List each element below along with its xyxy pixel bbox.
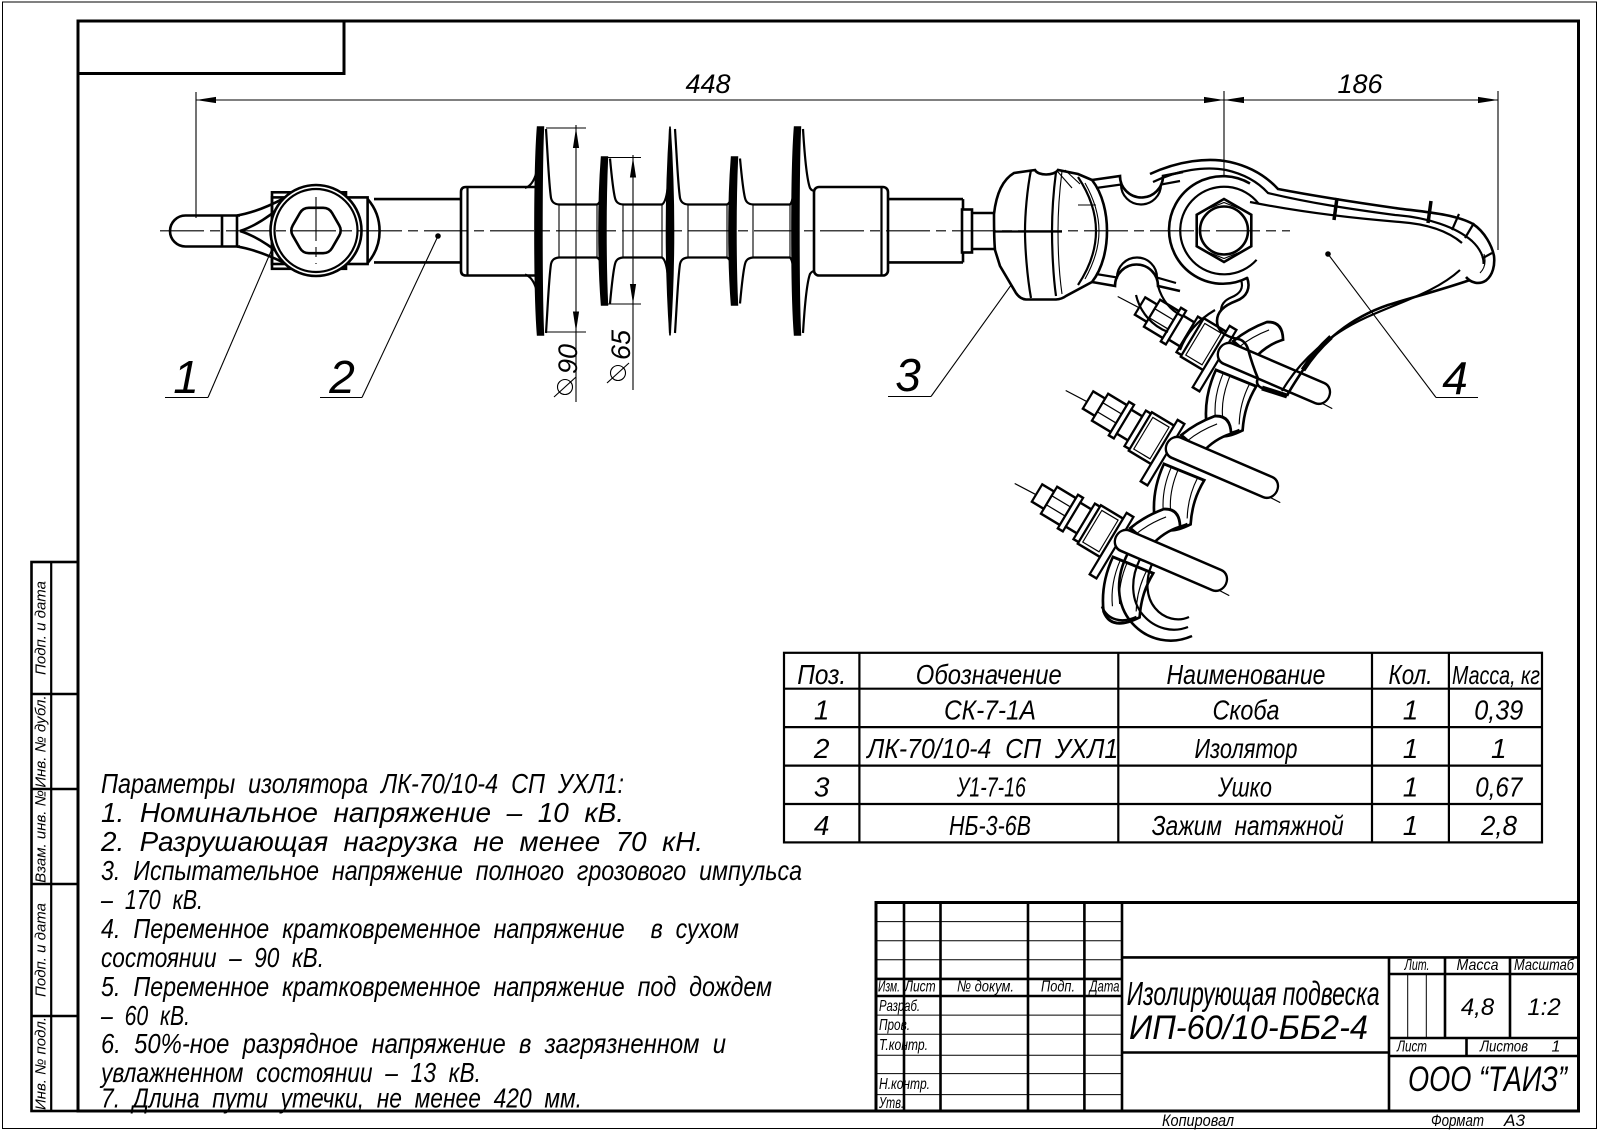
svg-text:Листов: Листов <box>1479 1039 1528 1056</box>
svg-text:Формат: Формат <box>1431 1111 1484 1130</box>
svg-text:Параметры изолятора ЛК-70/10: Параметры изолятора ЛК-70/10-4 СП УХЛ1: <box>101 768 624 799</box>
svg-text:Изолятор: Изолятор <box>1195 733 1298 764</box>
svg-text:7. Длина пути утечки, не: 7. Длина пути утечки, не менее 420 мм. <box>101 1083 582 1114</box>
svg-text:Лист: Лист <box>904 979 936 996</box>
svg-text:Зажим натяжной: Зажим натяжной <box>1152 810 1344 841</box>
svg-text:Копировал: Копировал <box>1162 1111 1234 1130</box>
svg-text:1: 1 <box>173 351 199 403</box>
svg-text:Взам. инв. №: Взам. инв. № <box>33 790 50 883</box>
svg-text:Обозначение: Обозначение <box>916 659 1062 690</box>
svg-text:Кол.: Кол. <box>1389 659 1433 690</box>
svg-text:Масштаб: Масштаб <box>1514 957 1575 974</box>
svg-text:65: 65 <box>606 329 636 360</box>
svg-text:ИП-60/10-ББ2-4: ИП-60/10-ББ2-4 <box>1129 1009 1368 1047</box>
svg-text:Лит.: Лит. <box>1404 957 1430 974</box>
svg-text:Ушко: Ушко <box>1217 772 1272 803</box>
svg-text:4: 4 <box>1442 352 1468 404</box>
svg-text:5. Переменное кратковременно: 5. Переменное кратковременное напряжение… <box>101 971 772 1002</box>
svg-text:состоянии – 90 кВ.: состоянии – 90 кВ. <box>101 942 324 973</box>
svg-text:Инв. № дубл.: Инв. № дубл. <box>33 695 50 787</box>
svg-text:Наименование: Наименование <box>1167 659 1326 690</box>
svg-text:1. Номинальное напряжение –: 1. Номинальное напряжение – 10 кВ. <box>101 797 624 828</box>
svg-text:1: 1 <box>1403 733 1419 764</box>
svg-text:Поз.: Поз. <box>797 659 846 690</box>
svg-text:– 170 кВ.: – 170 кВ. <box>100 884 203 915</box>
svg-text:0,39: 0,39 <box>1474 695 1523 726</box>
svg-text:0,67: 0,67 <box>1475 772 1523 803</box>
svg-text:Т.контр.: Т.контр. <box>879 1037 928 1054</box>
svg-text:Дата: Дата <box>1088 979 1119 996</box>
svg-text:ООО “ТАИЗ”: ООО “ТАИЗ” <box>1408 1060 1568 1099</box>
svg-text:1: 1 <box>1403 695 1419 726</box>
svg-text:4,8: 4,8 <box>1461 994 1495 1021</box>
svg-text:Инв. № подл.: Инв. № подл. <box>33 1017 50 1110</box>
svg-text:№ докум.: № докум. <box>957 979 1014 996</box>
svg-text:3: 3 <box>814 772 830 803</box>
svg-text:Пров.: Пров. <box>879 1017 910 1034</box>
svg-text:Н.контр.: Н.контр. <box>879 1076 930 1093</box>
svg-text:4: 4 <box>814 810 830 841</box>
svg-text:90: 90 <box>553 344 583 374</box>
svg-text:1: 1 <box>1552 1039 1561 1056</box>
svg-text:СК-7-1А: СК-7-1А <box>944 695 1036 726</box>
svg-text:2: 2 <box>328 351 355 403</box>
svg-text:1:2: 1:2 <box>1527 994 1560 1021</box>
svg-text:– 60 кВ.: – 60 кВ. <box>100 1000 190 1031</box>
svg-text:Утв.: Утв. <box>878 1095 904 1112</box>
svg-text:Скоба: Скоба <box>1213 695 1280 726</box>
svg-text:Масса: Масса <box>1457 957 1499 974</box>
svg-text:Подп.: Подп. <box>1041 979 1075 996</box>
svg-text:4. Переменное кратковременно: 4. Переменное кратковременное напряжение… <box>101 913 739 944</box>
svg-text:186: 186 <box>1337 69 1383 99</box>
svg-text:Разраб.: Разраб. <box>879 998 920 1015</box>
svg-text:2: 2 <box>813 733 830 764</box>
svg-text:НБ-3-6В: НБ-3-6В <box>949 810 1031 841</box>
svg-text:Масса, кг: Масса, кг <box>1452 660 1540 690</box>
svg-text:3: 3 <box>895 349 921 401</box>
svg-text:Изолирующая подвеска: Изолирующая подвеска <box>1127 975 1380 1012</box>
svg-text:2. Разрушающая нагрузка не: 2. Разрушающая нагрузка не менее 70 кН. <box>100 826 703 857</box>
svg-text:6. 50%-ное разрядное напряж: 6. 50%-ное разрядное напряжение в загряз… <box>101 1028 726 1059</box>
svg-text:448: 448 <box>685 69 730 99</box>
svg-text:А3: А3 <box>1503 1111 1526 1130</box>
svg-text:1: 1 <box>1403 810 1419 841</box>
svg-text:У1-7-16: У1-7-16 <box>956 772 1026 803</box>
svg-text:3. Испытательное напряжение: 3. Испытательное напряжение полного гроз… <box>101 855 802 886</box>
svg-text:2,8: 2,8 <box>1480 810 1517 841</box>
svg-text:1: 1 <box>1491 733 1507 764</box>
svg-text:Подп. и дата: Подп. и дата <box>33 581 50 675</box>
svg-text:ЛК-70/10-4 СП УХЛ1: ЛК-70/10-4 СП УХЛ1 <box>865 733 1118 764</box>
svg-text:Лист: Лист <box>1396 1039 1427 1056</box>
svg-text:1: 1 <box>814 695 830 726</box>
svg-text:Изм.: Изм. <box>878 979 900 996</box>
svg-text:Подп. и дата: Подп. и дата <box>33 903 50 997</box>
svg-text:1: 1 <box>1403 772 1419 803</box>
